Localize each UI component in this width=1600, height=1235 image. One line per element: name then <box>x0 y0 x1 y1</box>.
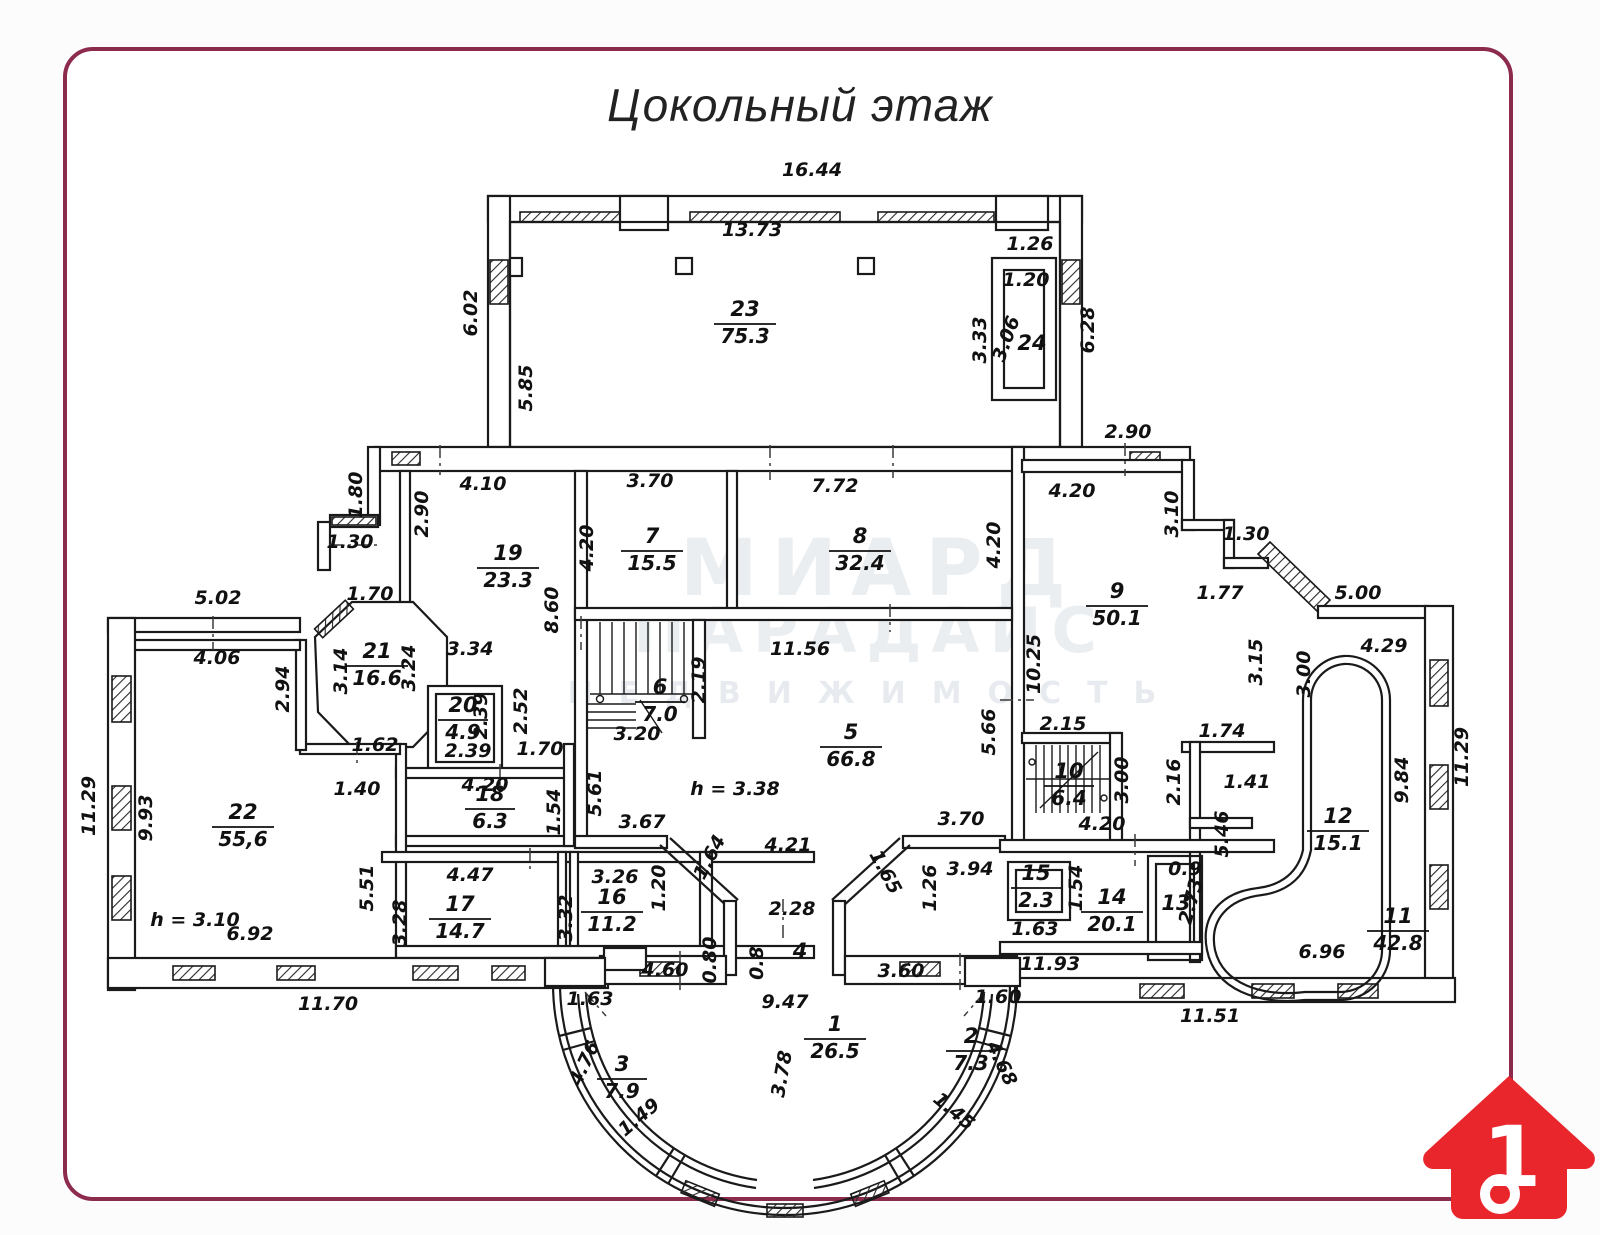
room-number: 13 <box>1161 891 1190 915</box>
room-number: 4 <box>792 939 808 963</box>
room-area: 2.3 <box>1018 888 1053 912</box>
dim-label: 4.20 <box>983 522 1005 570</box>
dim-label: 9.93 <box>135 795 157 842</box>
room-area: 50.1 <box>1092 606 1141 630</box>
room-number: 6 <box>653 675 668 699</box>
dim-label: 5.85 <box>515 365 537 412</box>
dim-label: 1.77 <box>1197 582 1245 604</box>
dim-label: 11.29 <box>1451 727 1473 787</box>
dim-label: h = 3.38 <box>690 778 780 800</box>
dim-label: 1.70 <box>517 738 564 760</box>
room-number: 16 <box>597 885 626 909</box>
room-number: 11 <box>1383 904 1412 928</box>
dim-label: 2.52 <box>510 688 532 735</box>
dim-label: 3.94 <box>947 858 994 880</box>
dim-label: 1.20 <box>648 865 670 912</box>
dim-label: 10.25 <box>1023 634 1045 694</box>
dim-label: 2.90 <box>1105 421 1152 443</box>
room-area: 42.8 <box>1372 931 1422 955</box>
room-area: 20.1 <box>1087 912 1136 936</box>
room-number: 10 <box>1054 759 1083 783</box>
dim-label: 8.60 <box>541 587 563 634</box>
dim-label: 5.66 <box>978 709 1000 756</box>
dim-label: 4.60 <box>641 959 689 981</box>
room-number: 2 <box>964 1024 979 1048</box>
dim-label: 2.94 <box>272 666 294 713</box>
room-number: 18 <box>475 782 504 806</box>
dim-label: 4.21 <box>764 834 812 856</box>
dim-label: 5.51 <box>356 865 378 912</box>
room-area: 7.9 <box>604 1079 640 1103</box>
dim-label: 2.15 <box>1040 713 1087 735</box>
dim-label: 3.32 <box>555 895 577 942</box>
room-number: 24 <box>1017 331 1046 355</box>
dim-label: 11.51 <box>1180 1005 1240 1027</box>
dim-label: 0.8 <box>746 946 768 980</box>
room-area: 32.4 <box>835 551 884 575</box>
dim-label: 6.96 <box>1299 941 1346 963</box>
dim-label: 3.28 <box>389 900 411 947</box>
dim-label: 4.47 <box>446 864 495 886</box>
dim-label: 1.20 <box>1003 269 1050 291</box>
room-area: 66.8 <box>826 747 875 771</box>
dim-label: 11.70 <box>298 993 358 1015</box>
agency-logo: 1 <box>1423 1076 1595 1219</box>
dim-label: 1.60 <box>975 986 1022 1008</box>
dim-label: 5.00 <box>1335 582 1382 604</box>
dim-label: 0.80 <box>699 937 721 984</box>
dim-label: 1.63 <box>1012 918 1059 940</box>
dim-label: 4.29 <box>1360 635 1408 657</box>
dim-label: 5.61 <box>584 770 606 817</box>
room-area: 26.5 <box>810 1039 859 1063</box>
room-number: 3 <box>615 1052 630 1076</box>
dim-label: 2.90 <box>411 491 433 538</box>
dim-label: 2.28 <box>769 898 816 920</box>
dim-label: 1.74 <box>1199 720 1246 742</box>
dim-label: 11.56 <box>770 638 830 660</box>
dim-label: 16.44 <box>782 159 842 181</box>
room-area: 15.5 <box>627 551 676 575</box>
room-area: 11.2 <box>587 912 636 936</box>
room-area: 16.6 <box>352 666 401 690</box>
dim-label: 6.28 <box>1077 307 1099 354</box>
room-number: 15 <box>1021 861 1050 885</box>
dim-label: 11.29 <box>78 776 100 836</box>
dim-label: 1.26 <box>1007 233 1054 255</box>
dim-label: 9.84 <box>1391 757 1413 804</box>
dim-label: 2.16 <box>1163 759 1185 806</box>
dim-label: 5.02 <box>195 587 242 609</box>
dim-label: 6.92 <box>227 923 274 945</box>
dim-label: 3.78 <box>767 1049 797 1099</box>
dim-label: 4.06 <box>193 647 241 669</box>
dim-label: 3.60 <box>878 960 925 982</box>
dim-label: 3.00 <box>1293 651 1315 698</box>
room-area: 23.3 <box>483 568 532 592</box>
page: Цокольный этаж МИАРД ПАРАДАИС НЕДВИЖИМОС… <box>0 0 1600 1235</box>
floor-plan: МИАРД ПАРАДАИС НЕДВИЖИМОСТЬ <box>0 0 1600 1235</box>
dim-label: 5.46 <box>1211 811 1233 858</box>
dim-label: 1.40 <box>334 778 381 800</box>
dim-label: 2.19 <box>688 657 710 704</box>
dim-label: 1.54 <box>543 789 565 836</box>
dim-label: 1.30 <box>1223 523 1270 545</box>
dim-label: 6.02 <box>460 290 482 337</box>
room-number: 19 <box>493 541 522 565</box>
room-area: 14.7 <box>435 919 484 943</box>
dim-label: 3.00 <box>1111 757 1133 804</box>
room-number: 7 <box>645 524 660 548</box>
dim-label: 4.10 <box>459 473 507 495</box>
dim-label: 7.72 <box>812 475 859 497</box>
room-number: 9 <box>1110 579 1125 603</box>
room-area: 6.3 <box>472 809 507 833</box>
dim-label: 1.80 <box>345 472 367 519</box>
dim-label: 1.26 <box>919 865 941 912</box>
room-area: 75.3 <box>720 324 769 348</box>
dim-label: 3.70 <box>938 808 985 830</box>
dim-label: 1.41 <box>1224 771 1271 793</box>
dim-label: 3.67 <box>619 811 667 833</box>
dim-label: 3.34 <box>447 638 494 660</box>
dim-label: 3.70 <box>627 470 674 492</box>
dim-label: 3.20 <box>614 723 661 745</box>
dim-label: 1.63 <box>567 988 614 1010</box>
dim-label: 1.30 <box>327 531 374 553</box>
room-number: 5 <box>844 720 859 744</box>
room-number: 17 <box>445 892 475 916</box>
dim-label: 13.73 <box>722 219 782 241</box>
dim-label: 1.54 <box>1065 865 1087 912</box>
room-area: 55,6 <box>218 827 267 851</box>
dim-label: 0.9 <box>1168 858 1202 880</box>
room-number: 1 <box>828 1012 843 1036</box>
dim-label: 4.20 <box>1078 813 1126 835</box>
dim-label: 11.93 <box>1020 953 1080 975</box>
dim-label: 4.20 <box>576 525 598 573</box>
room-number: 23 <box>730 297 759 321</box>
dim-label: 3.10 <box>1161 491 1183 538</box>
dim-label: 1.70 <box>347 583 394 605</box>
dim-label: 3.14 <box>330 648 352 695</box>
dim-label: 9.47 <box>762 991 810 1013</box>
room-area: 7.0 <box>642 702 678 726</box>
room-number: 20 <box>448 693 477 717</box>
room-number: 12 <box>1323 804 1352 828</box>
room-area: 6.4 <box>1051 786 1086 810</box>
room-number: 22 <box>228 800 257 824</box>
room-area: 15.1 <box>1313 831 1362 855</box>
room-area: 7.3 <box>953 1051 988 1075</box>
room-area: 4.9 <box>444 720 481 744</box>
room-number: 8 <box>853 524 868 548</box>
dim-label: 4.20 <box>1048 480 1096 502</box>
dim-label: 3.15 <box>1245 639 1267 686</box>
dim-label: 1.62 <box>352 734 399 756</box>
dim-label: 4.76 <box>564 1038 604 1091</box>
room-number: 21 <box>362 639 391 663</box>
room-number: 14 <box>1097 885 1126 909</box>
